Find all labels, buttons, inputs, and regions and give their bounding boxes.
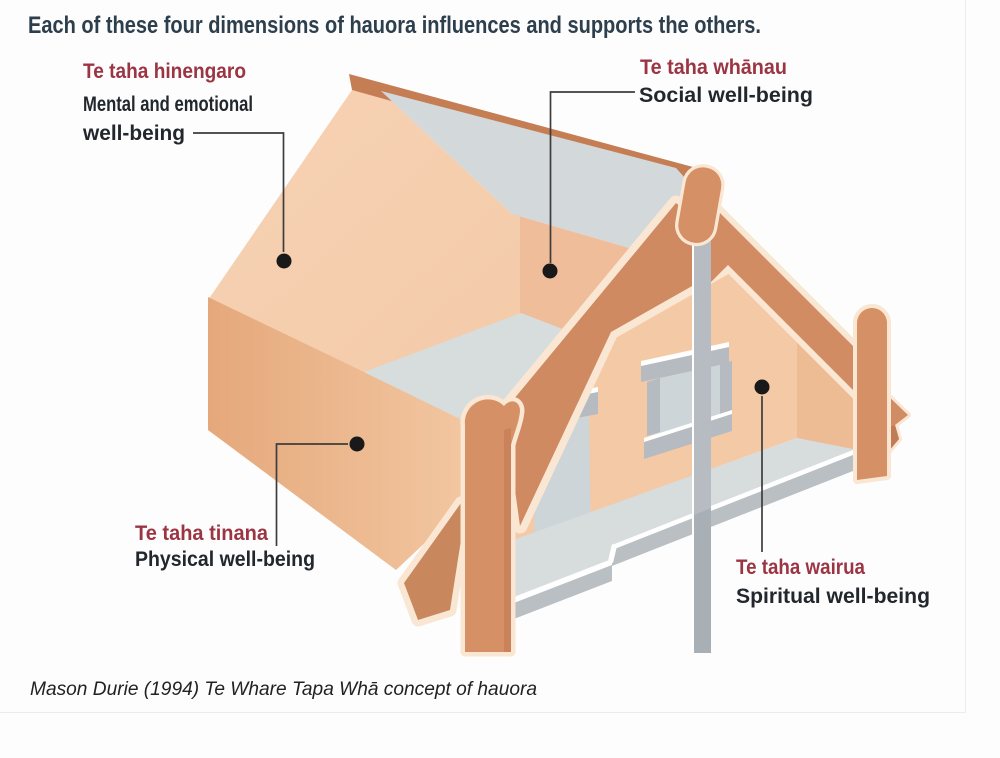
svg-text:Te taha tinana: Te taha tinana bbox=[135, 521, 269, 545]
svg-text:Te taha hinengaro: Te taha hinengaro bbox=[83, 59, 246, 83]
svg-text:Spiritual well-being: Spiritual well-being bbox=[736, 584, 930, 608]
svg-text:Social well-being: Social well-being bbox=[639, 83, 813, 107]
svg-text:Te taha whānau: Te taha whānau bbox=[640, 55, 787, 79]
svg-text:well-being: well-being bbox=[82, 121, 185, 145]
svg-text:Te taha wairua: Te taha wairua bbox=[736, 555, 866, 579]
svg-text:Mental and emotional: Mental and emotional bbox=[83, 92, 253, 116]
svg-text:Each of these four dimensions: Each of these four dimensions of hauora … bbox=[28, 12, 761, 39]
svg-text:Physical well-being: Physical well-being bbox=[135, 547, 315, 571]
svg-text:Mason Durie (1994) Te Whare Ta: Mason Durie (1994) Te Whare Tapa Whā con… bbox=[30, 678, 537, 700]
